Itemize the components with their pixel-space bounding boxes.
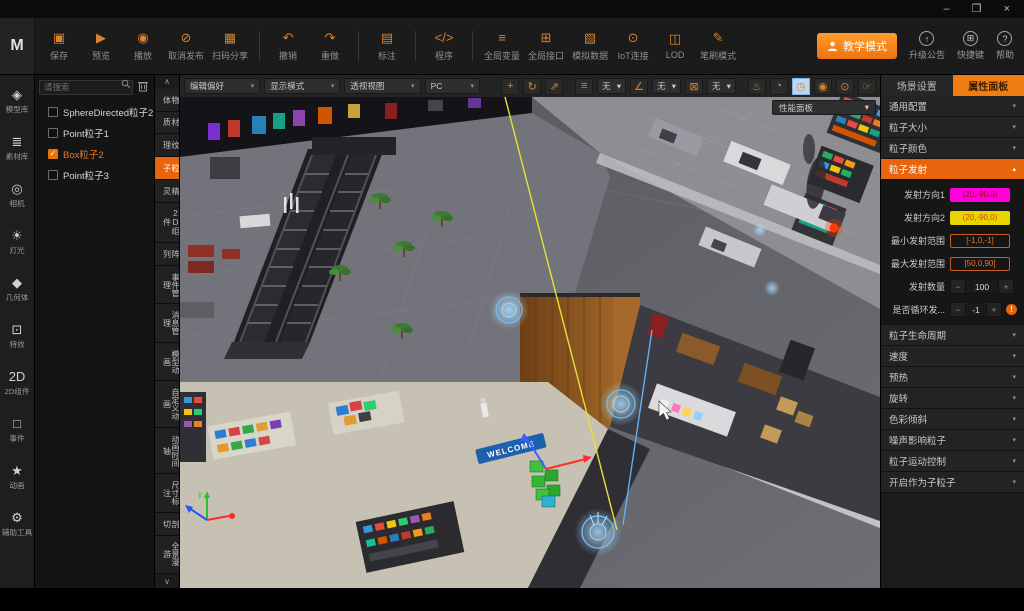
- warning-badge: !: [1006, 304, 1017, 315]
- section-title: 粒子发射: [889, 162, 927, 176]
- target-tool-button[interactable]: ⊙: [836, 78, 854, 95]
- close-icon[interactable]: ×: [1004, 4, 1010, 15]
- dropdown-value: 透视视图: [350, 80, 384, 92]
- toolbar-separator: [415, 31, 416, 61]
- chevron-down-icon: ▾: [1012, 144, 1016, 152]
- hand-icon: ☞: [862, 80, 872, 93]
- move-tool-button[interactable]: +: [501, 78, 519, 95]
- sidebar-item-events[interactable]: □ 事件: [0, 407, 35, 454]
- property-label: 发射方向1: [881, 188, 945, 201]
- chevron-down-icon: ▾: [1012, 123, 1016, 131]
- chevron-down-icon: ▾: [411, 82, 415, 90]
- direction2-value-chip[interactable]: (20,-90,0): [950, 211, 1010, 225]
- keyboard-icon: ⊞: [963, 31, 978, 46]
- code-button[interactable]: </> 程序: [425, 29, 463, 64]
- section-title: 粒子生命周期: [889, 328, 946, 342]
- brush-label: 笔刷模式: [700, 49, 736, 62]
- toolbar-separator: [358, 31, 359, 61]
- sidebar-item-asset-library[interactable]: ≣ 素材库: [0, 125, 35, 172]
- help-button[interactable]: ? 帮助: [996, 31, 1014, 61]
- letterbox-bottom: [0, 588, 1024, 611]
- undo-icon: ↶: [283, 31, 294, 46]
- angle-icon: ∠: [634, 80, 644, 93]
- section-title: 噪声影响粒子: [889, 433, 946, 447]
- toolbar-separator: [259, 31, 260, 61]
- sidebar-label: 2D组件: [5, 386, 30, 396]
- lamp-icon: ♨: [752, 80, 762, 93]
- app-window: – ❐ × M ▣ 保存 ▶ 预览 ◉ 播放 ⊘ 取消发布 ▦: [0, 0, 1024, 611]
- toolbar-group-file: ▣ 保存 ▶ 预览 ◉ 播放 ⊘ 取消发布 ▦ 扫码分享: [35, 18, 255, 74]
- tab-event-manage[interactable]: 事件管理: [155, 266, 179, 305]
- section-speed[interactable]: 速度 ▾: [881, 346, 1024, 367]
- particle-emitter-gizmo[interactable]: [599, 382, 643, 426]
- edit-preference-dropdown[interactable]: 编辑偏好 ▾: [184, 78, 260, 94]
- move-snap-icon[interactable]: ≡: [575, 78, 593, 95]
- move-icon: +: [507, 80, 513, 92]
- tree-header: [35, 75, 154, 97]
- toolbox-icon: ⚙: [11, 511, 23, 525]
- chevron-down-icon: ▾: [1012, 102, 1016, 110]
- particle-emitter-gizmo[interactable]: [574, 508, 622, 556]
- top-toolbar: M ▣ 保存 ▶ 预览 ◉ 播放 ⊘ 取消发布 ▦ 扫码分享: [0, 18, 1024, 75]
- checkbox-unchecked[interactable]: [48, 170, 58, 180]
- chevron-down-icon: ▾: [1012, 394, 1016, 402]
- section-title: 粒子运动控制: [889, 454, 946, 468]
- toolbar-separator: [472, 31, 473, 61]
- tab-array[interactable]: 阵列: [155, 243, 179, 266]
- panel-tabs: 场景设置 属性面板: [881, 75, 1024, 96]
- play-icon: ◉: [137, 31, 148, 46]
- platform-dropdown[interactable]: PC ▾: [425, 78, 480, 94]
- help-label: 帮助: [996, 48, 1014, 61]
- section-title: 粒子大小: [889, 120, 927, 134]
- save-icon: ▣: [53, 31, 65, 46]
- global-api-button[interactable]: ⊞ 全局接口: [526, 29, 566, 64]
- brush-mode-button[interactable]: ✎ 笔刷模式: [698, 29, 738, 64]
- tab-dimension[interactable]: 尺寸标注: [155, 474, 179, 513]
- lod-button[interactable]: ◫ LOD: [656, 30, 694, 62]
- property-label: 发射方向2: [881, 211, 945, 224]
- chevron-down-icon: ▾: [251, 82, 255, 90]
- code-icon: </>: [435, 31, 454, 46]
- undo-label: 撤销: [279, 49, 297, 62]
- sidebar-item-aux-tools[interactable]: ⚙ 辅助工具: [0, 501, 35, 548]
- titlebar: – ❐ ×: [0, 0, 1024, 18]
- cancel-publish-button[interactable]: ⊘ 取消发布: [166, 29, 206, 64]
- chevron-down-icon: ▾: [1012, 478, 1016, 486]
- global-vars-icon: ≡: [498, 31, 506, 46]
- chevron-up-icon: ▴: [1012, 165, 1016, 173]
- property-label: 最小发射范围: [881, 234, 945, 247]
- pie-chart-icon: ◔: [775, 80, 782, 92]
- particle-glow: [753, 223, 767, 237]
- tree-item-point-particle-1[interactable]: Point粒子1: [35, 122, 154, 143]
- upgrade-label: 升级公告: [909, 48, 945, 61]
- teach-mode-label: 教学模式: [843, 38, 887, 54]
- viewport-3d[interactable]: 编辑偏好 ▾ 显示模式 ▾ 透视视图 ▾ PC ▾ + ↻ ⇗ ≡ 无: [180, 75, 880, 588]
- loop-emit-value[interactable]: -1: [965, 303, 987, 316]
- performance-panel-label: 性能面板: [779, 102, 813, 114]
- section-general-config[interactable]: 通用配置 ▾: [881, 96, 1024, 117]
- sidebar-item-animation[interactable]: ★ 动画: [0, 454, 35, 501]
- chevron-down-icon: ▾: [672, 81, 676, 92]
- preview-button[interactable]: ▶ 预览: [82, 29, 120, 64]
- section-rotation[interactable]: 旋转 ▾: [881, 388, 1024, 409]
- collapse-down-icon[interactable]: ∨: [164, 574, 170, 588]
- search-icon: [121, 79, 131, 89]
- sidebar-item-camera[interactable]: ◎ 相机: [0, 172, 35, 219]
- focus-tool-button[interactable]: ♨: [748, 78, 766, 95]
- scale-tool-button[interactable]: ⇗: [545, 78, 563, 95]
- particle-emitter-gizmo[interactable]: [489, 290, 529, 330]
- tab-model-anim[interactable]: 模型动画: [155, 343, 179, 382]
- annotate-label: 标注: [378, 49, 396, 62]
- person-icon: [827, 41, 838, 52]
- section-particle-color[interactable]: 粒子颜色 ▾: [881, 138, 1024, 159]
- tree-item-label: Box粒子2: [63, 147, 104, 161]
- sidebar-item-light[interactable]: ☀ 灯光: [0, 219, 35, 266]
- tree-item-label: SphereDirected粒子2: [63, 105, 153, 119]
- upgrade-icon: ↑: [919, 31, 934, 46]
- toolbar-right: 教学模式 ↑ 升级公告 ⊞ 快捷键 ? 帮助: [817, 18, 1024, 74]
- sidebar-label: 辅助工具: [2, 527, 32, 537]
- chevron-down-icon: ▾: [331, 82, 335, 90]
- sidebar-label: 模型库: [6, 104, 29, 114]
- axis-y-label: y: [198, 490, 202, 499]
- angle-snap-icon[interactable]: ∠: [630, 78, 648, 95]
- section-preheat[interactable]: 预热 ▾: [881, 367, 1024, 388]
- tab-custom-anim[interactable]: 自定义动画: [155, 381, 179, 427]
- effects-icon: ⊡: [12, 323, 23, 337]
- scan-share-label: 扫码分享: [212, 49, 248, 62]
- global-vars-button[interactable]: ≡ 全局变量: [482, 29, 522, 64]
- help-icon: ?: [997, 31, 1012, 46]
- animation-star-icon: ★: [11, 464, 23, 478]
- teach-mode-button[interactable]: 教学模式: [817, 33, 897, 59]
- tree-item-sphere-particle[interactable]: SphereDirected粒子2: [35, 101, 154, 122]
- brush-icon: ✎: [713, 31, 724, 46]
- dropdown-value: 编辑偏好: [190, 80, 224, 92]
- sidebar-item-effects[interactable]: ⊡ 特效: [0, 313, 35, 360]
- lod-icon: ◫: [669, 32, 681, 47]
- snap-value: 无: [657, 80, 666, 92]
- global-api-label: 全局接口: [528, 49, 564, 62]
- target-icon: ⊙: [840, 80, 849, 93]
- stats-tool-button[interactable]: ◔: [770, 78, 788, 95]
- perspective-view-dropdown[interactable]: 透视视图 ▾: [344, 78, 420, 94]
- iot-label: IoT连接: [618, 49, 649, 62]
- cancel-publish-label: 取消发布: [168, 49, 204, 62]
- model-cube-icon: ◈: [12, 88, 22, 102]
- section-title: 预热: [889, 370, 908, 384]
- scale-icon: ⇗: [550, 80, 559, 93]
- angle-snap-dropdown[interactable]: 无 ▾: [652, 78, 681, 94]
- snap-value: 无: [602, 80, 611, 92]
- mock-data-label: 模拟数据: [572, 49, 608, 62]
- sidebar-item-geometry[interactable]: ◆ 几何体: [0, 266, 35, 313]
- checkbox-unchecked[interactable]: [48, 107, 58, 117]
- section-color-tilt[interactable]: 色彩倾斜 ▾: [881, 409, 1024, 430]
- direction1-value-chip[interactable]: (20,-90,0): [950, 188, 1010, 202]
- scene-3d-view: WELCOME: [180, 97, 880, 588]
- section-title: 速度: [889, 349, 908, 363]
- tree-item-box-particle-2[interactable]: ✓ Box粒子2: [35, 143, 154, 164]
- property-row-direction-2: 发射方向2 (20,-90,0): [881, 206, 1024, 229]
- performance-panel-button[interactable]: ◷: [792, 78, 810, 95]
- checkbox-unchecked[interactable]: [48, 128, 58, 138]
- section-child-particle[interactable]: 开启作为子粒子 ▾: [881, 472, 1024, 493]
- property-row-emit-count: 发射数量 − 100 +: [881, 275, 1024, 298]
- camera-icon: ◎: [11, 182, 22, 196]
- tree-item-point-particle-3[interactable]: Point粒子3: [35, 164, 154, 185]
- tab-message-manage[interactable]: 消息管理: [155, 304, 179, 343]
- layers-icon: ≣: [12, 135, 23, 149]
- dropdown-value: 显示模式: [270, 80, 304, 92]
- snap-value: 无: [712, 80, 721, 92]
- sidebar-label: 素材库: [6, 151, 29, 161]
- tree-item-label: Point粒子1: [63, 126, 109, 140]
- preview-icon: ▶: [96, 31, 106, 46]
- performance-icon: ◷: [796, 80, 806, 93]
- property-label: 是否循环发...: [881, 303, 945, 316]
- scene-tree-panel: SphereDirected粒子2 Point粒子1 ✓ Box粒子2 Poin…: [35, 75, 155, 588]
- section-particle-emission[interactable]: 粒子发射 ▴: [881, 159, 1024, 180]
- left-toolbar: ◈ 模型库 ≣ 素材库 ◎ 相机 ☀ 灯光 ◆ 几何体 ⊡ 特效 2D 2D组件…: [0, 75, 35, 588]
- redo-label: 重做: [321, 49, 339, 62]
- chevron-down-icon: ▾: [1012, 373, 1016, 381]
- scan-share-button[interactable]: ▦ 扫码分享: [210, 29, 250, 64]
- tab-properties[interactable]: 属性面板: [953, 75, 1024, 96]
- play-label: 播放: [134, 49, 152, 62]
- performance-panel-dropdown[interactable]: 性能面板 ▾: [772, 100, 876, 115]
- mock-data-icon: ▧: [584, 31, 596, 46]
- chevron-down-icon: ▾: [1012, 436, 1016, 444]
- scale-snap-icon[interactable]: ⊠: [685, 78, 703, 95]
- property-row-direction-1: 发射方向1 (20,-90,0): [881, 183, 1024, 206]
- global-vars-label: 全局变量: [484, 49, 520, 62]
- scan-share-icon: ▦: [224, 31, 236, 46]
- dropdown-value: PC: [431, 81, 443, 91]
- search-input[interactable]: [39, 80, 133, 95]
- save-label: 保存: [50, 49, 68, 62]
- category-tab-strip: ∧ 物体 材质 纹理 粒子 精灵 2D组件 阵列 事件管理 消息管理 模型动画 …: [155, 75, 180, 588]
- sidebar-item-2d-components[interactable]: 2D 2D组件: [0, 360, 35, 407]
- tree-item-list: SphereDirected粒子2 Point粒子1 ✓ Box粒子2 Poin…: [35, 97, 154, 185]
- section-title: 色彩倾斜: [889, 412, 927, 426]
- tab-particle[interactable]: 粒子: [155, 157, 179, 180]
- eye-icon: ◉: [818, 80, 828, 93]
- max-range-value-chip[interactable]: [50,0,90]: [950, 257, 1010, 271]
- tab-panorama[interactable]: 全景漫游: [155, 536, 179, 575]
- sidebar-label: 灯光: [9, 245, 24, 255]
- scene-canvas[interactable]: WELCOME: [180, 97, 880, 588]
- tab-sprite[interactable]: 精灵: [155, 180, 179, 203]
- list-icon: ≡: [581, 80, 587, 92]
- maximize-icon[interactable]: ❐: [972, 4, 982, 15]
- global-api-icon: ⊞: [541, 31, 552, 46]
- section-particle-size[interactable]: 粒子大小 ▾: [881, 117, 1024, 138]
- sidebar-label: 几何体: [6, 292, 29, 302]
- chevron-down-icon: ▾: [865, 102, 869, 113]
- min-range-value-chip[interactable]: [-1,0,-1]: [950, 234, 1010, 248]
- cancel-publish-icon: ⊘: [181, 31, 192, 46]
- light-bulb-icon: ☀: [11, 229, 23, 243]
- increment-button[interactable]: +: [987, 303, 1001, 316]
- upgrade-news-button[interactable]: ↑ 升级公告: [909, 31, 945, 61]
- tab-2d-component[interactable]: 2D组件: [155, 203, 179, 244]
- chevron-down-icon: ▾: [1012, 457, 1016, 465]
- sidebar-label: 事件: [9, 433, 24, 443]
- emit-count-value[interactable]: 100: [965, 280, 999, 293]
- undo-button[interactable]: ↶ 撤销: [269, 29, 307, 64]
- minimize-icon[interactable]: –: [944, 4, 950, 15]
- iot-icon: ⊙: [628, 31, 639, 46]
- move-snap-dropdown[interactable]: 无 ▾: [597, 78, 626, 94]
- property-label: 最大发射范围: [881, 257, 945, 270]
- property-label: 发射数量: [881, 280, 945, 293]
- tree-item-label: Point粒子3: [63, 168, 109, 182]
- pan-tool-button[interactable]: ☞: [858, 78, 876, 95]
- tab-material[interactable]: 材质: [155, 112, 179, 135]
- 2d-component-icon: 2D: [9, 370, 26, 384]
- save-button[interactable]: ▣ 保存: [40, 29, 78, 64]
- sidebar-item-model-library[interactable]: ◈ 模型库: [0, 78, 35, 125]
- events-icon: □: [13, 417, 21, 431]
- mock-data-button[interactable]: ▧ 模拟数据: [570, 29, 610, 64]
- section-motion-control[interactable]: 粒子运动控制 ▾: [881, 451, 1024, 472]
- property-row-loop-emit: 是否循环发... − -1 + !: [881, 298, 1024, 321]
- chevron-down-icon: ▾: [617, 81, 621, 92]
- collapse-up-icon[interactable]: ∧: [164, 75, 170, 89]
- section-title: 旋转: [889, 391, 908, 405]
- section-title: 开启作为子粒子: [889, 475, 956, 489]
- emission-section-body: 发射方向1 (20,-90,0) 发射方向2 (20,-90,0) 最小发射范围…: [881, 180, 1024, 325]
- tab-anim-timeline[interactable]: 动画时间轴: [155, 428, 179, 474]
- annotate-button[interactable]: ▤ 标注: [368, 29, 406, 64]
- toolbar-group-code: </> 程序: [420, 18, 468, 74]
- tab-texture[interactable]: 纹理: [155, 134, 179, 157]
- delete-trash-icon[interactable]: [136, 79, 150, 94]
- retail-floor: WELCOME: [180, 382, 650, 588]
- increment-button[interactable]: +: [999, 280, 1013, 293]
- sidebar-label: 相机: [9, 198, 24, 208]
- app-logo: M: [0, 18, 35, 74]
- particle-glow: [764, 280, 780, 296]
- section-title: 通用配置: [889, 99, 927, 113]
- hotkeys-button[interactable]: ⊞ 快捷键: [957, 31, 984, 61]
- fit-box-icon: ⊠: [689, 80, 698, 93]
- sidebar-label: 特效: [9, 339, 24, 349]
- redo-button[interactable]: ↷ 重做: [311, 29, 349, 64]
- scale-snap-dropdown[interactable]: 无 ▾: [707, 78, 736, 94]
- tab-scene-settings[interactable]: 场景设置: [881, 75, 953, 96]
- tab-section-cut[interactable]: 剖切: [155, 513, 179, 536]
- chevron-down-icon: ▾: [727, 81, 731, 92]
- rotate-tool-button[interactable]: ↻: [523, 78, 541, 95]
- toolbar-group-history: ↶ 撤销 ↷ 重做: [264, 18, 354, 74]
- annotate-icon: ▤: [381, 31, 393, 46]
- section-noise[interactable]: 噪声影响粒子 ▾: [881, 430, 1024, 451]
- tab-object[interactable]: 物体: [155, 89, 179, 112]
- preview-label: 预览: [92, 49, 110, 62]
- chevron-down-icon: ▾: [1012, 331, 1016, 339]
- geometry-icon: ◆: [12, 276, 22, 290]
- chevron-down-icon: ▾: [470, 82, 474, 90]
- checkbox-checked[interactable]: ✓: [48, 149, 58, 159]
- redo-icon: ↷: [325, 31, 336, 46]
- chevron-down-icon: ▾: [1012, 352, 1016, 360]
- hotkeys-label: 快捷键: [957, 48, 984, 61]
- viewport-toolbar: 编辑偏好 ▾ 显示模式 ▾ 透视视图 ▾ PC ▾ + ↻ ⇗ ≡ 无: [180, 75, 880, 97]
- property-row-min-range: 最小发射范围 [-1,0,-1]: [881, 229, 1024, 252]
- property-row-max-range: 最大发射范围 [50,0,90]: [881, 252, 1024, 275]
- loop-emit-stepper: − -1 +: [950, 302, 1002, 317]
- emit-count-stepper: − 100 +: [950, 279, 1014, 294]
- decrement-button[interactable]: −: [951, 280, 965, 293]
- lod-label: LOD: [666, 50, 685, 60]
- toolbar-group-annotate: ▤ 标注: [363, 18, 411, 74]
- properties-panel: 场景设置 属性面板 通用配置 ▾ 粒子大小 ▾ 粒子颜色 ▾ 粒子发射 ▴ 发射…: [880, 75, 1024, 588]
- code-label: 程序: [435, 49, 453, 62]
- visibility-tool-button[interactable]: ◉: [814, 78, 832, 95]
- section-title: 粒子颜色: [889, 141, 927, 155]
- decrement-button[interactable]: −: [951, 303, 965, 316]
- chevron-down-icon: ▾: [1012, 415, 1016, 423]
- display-mode-dropdown[interactable]: 显示模式 ▾: [264, 78, 340, 94]
- play-button[interactable]: ◉ 播放: [124, 29, 162, 64]
- section-particle-lifecycle[interactable]: 粒子生命周期 ▾: [881, 325, 1024, 346]
- rotate-icon: ↻: [528, 80, 537, 93]
- toolbar-group-global: ≡ 全局变量 ⊞ 全局接口 ▧ 模拟数据 ⊙ IoT连接 ◫ LOD ✎ 笔刷模…: [477, 18, 743, 74]
- sidebar-label: 动画: [9, 480, 24, 490]
- iot-button[interactable]: ⊙ IoT连接: [614, 29, 652, 64]
